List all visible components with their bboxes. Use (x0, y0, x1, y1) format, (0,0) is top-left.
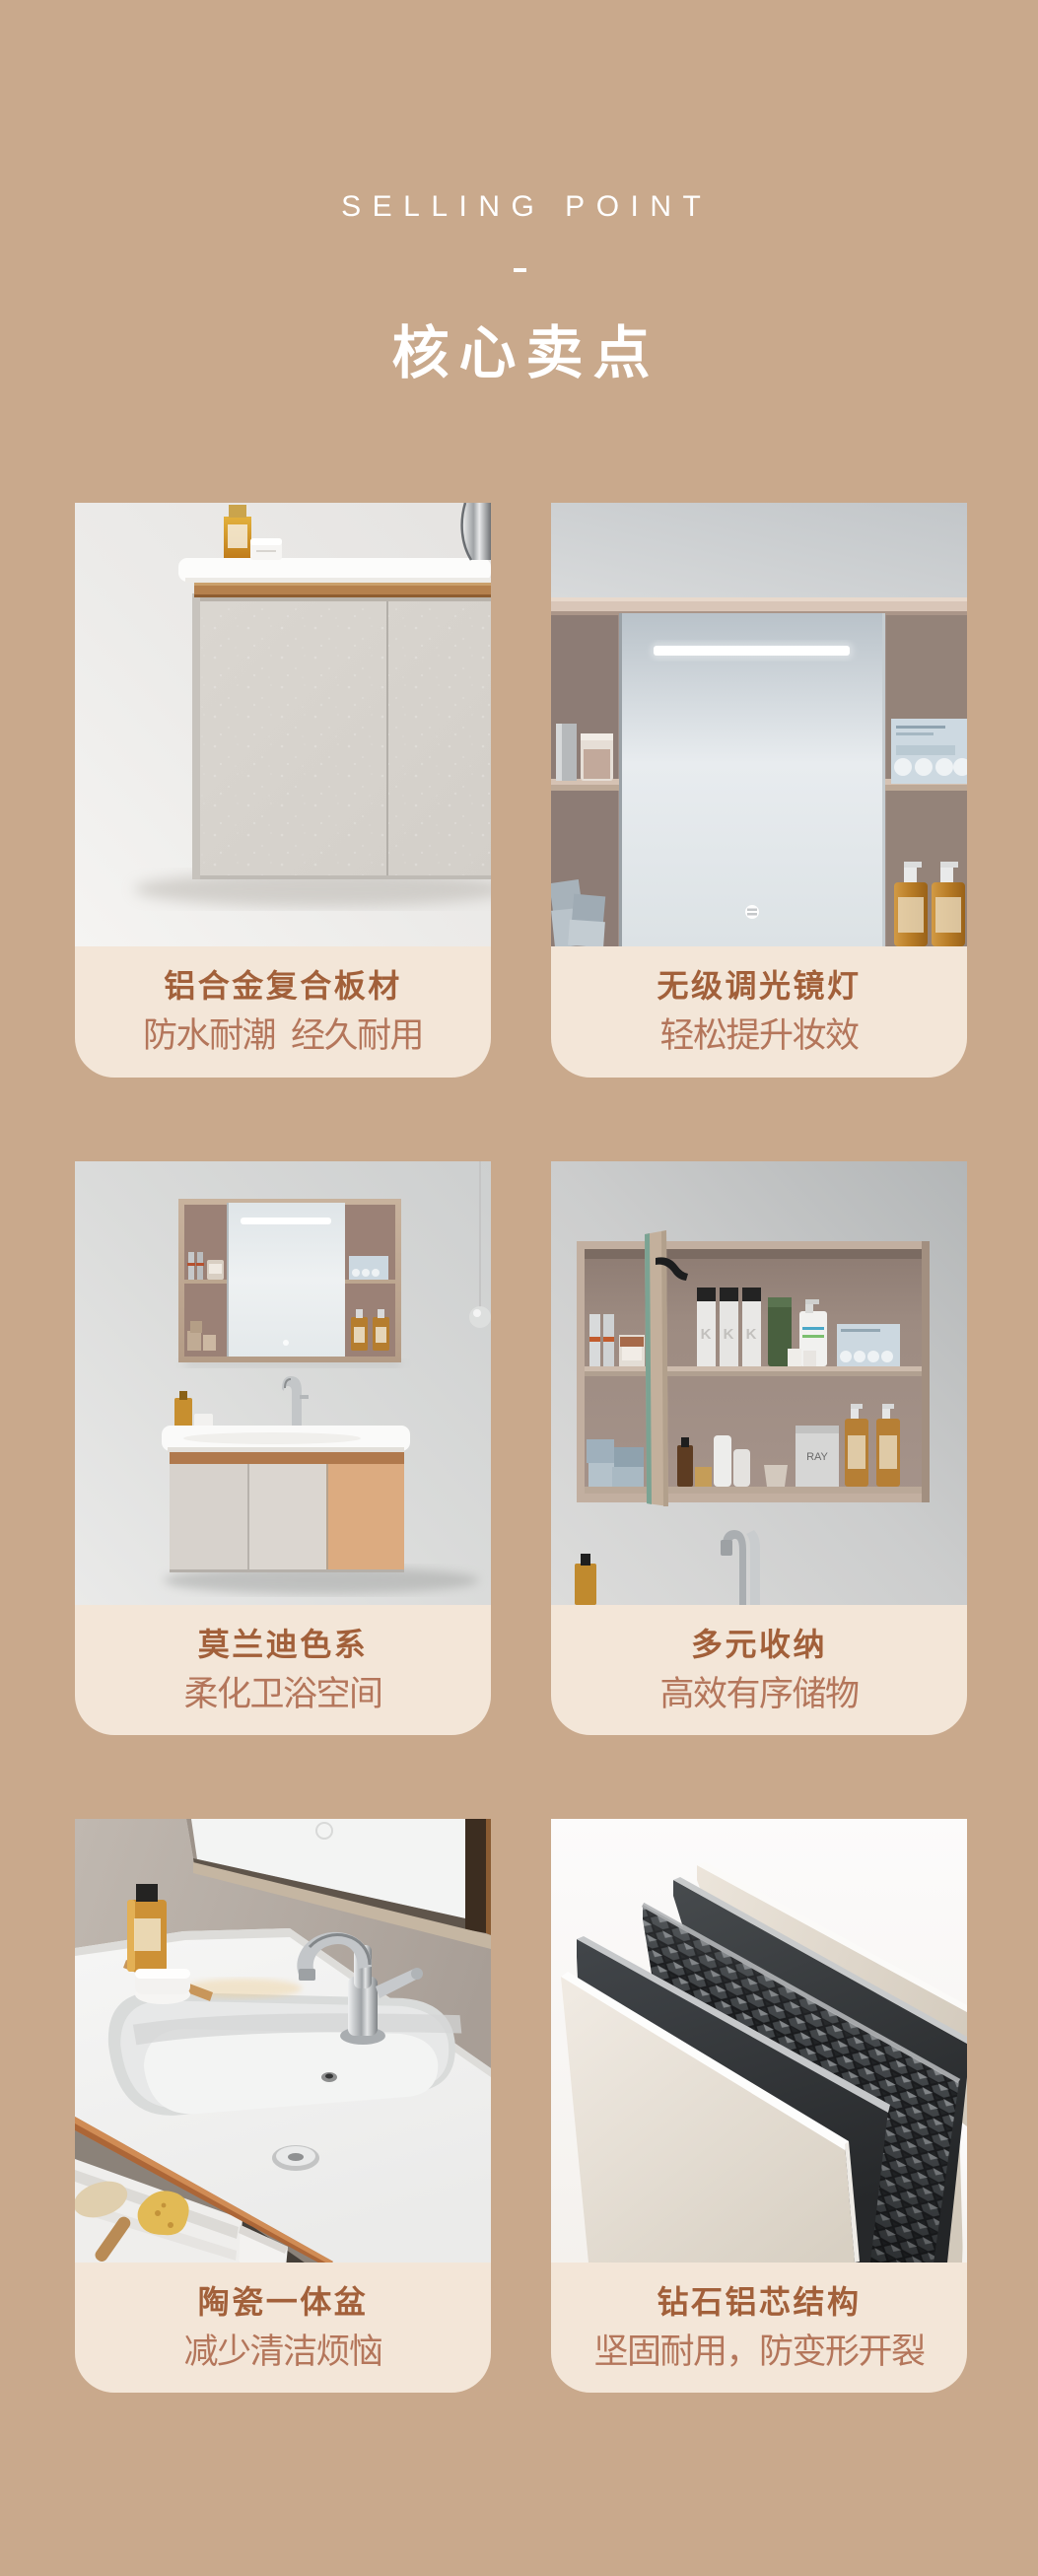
svg-text:K: K (746, 1326, 757, 1343)
svg-text:K: K (724, 1326, 734, 1343)
svg-text:K: K (701, 1326, 712, 1343)
svg-text:RAY: RAY (806, 1451, 828, 1463)
